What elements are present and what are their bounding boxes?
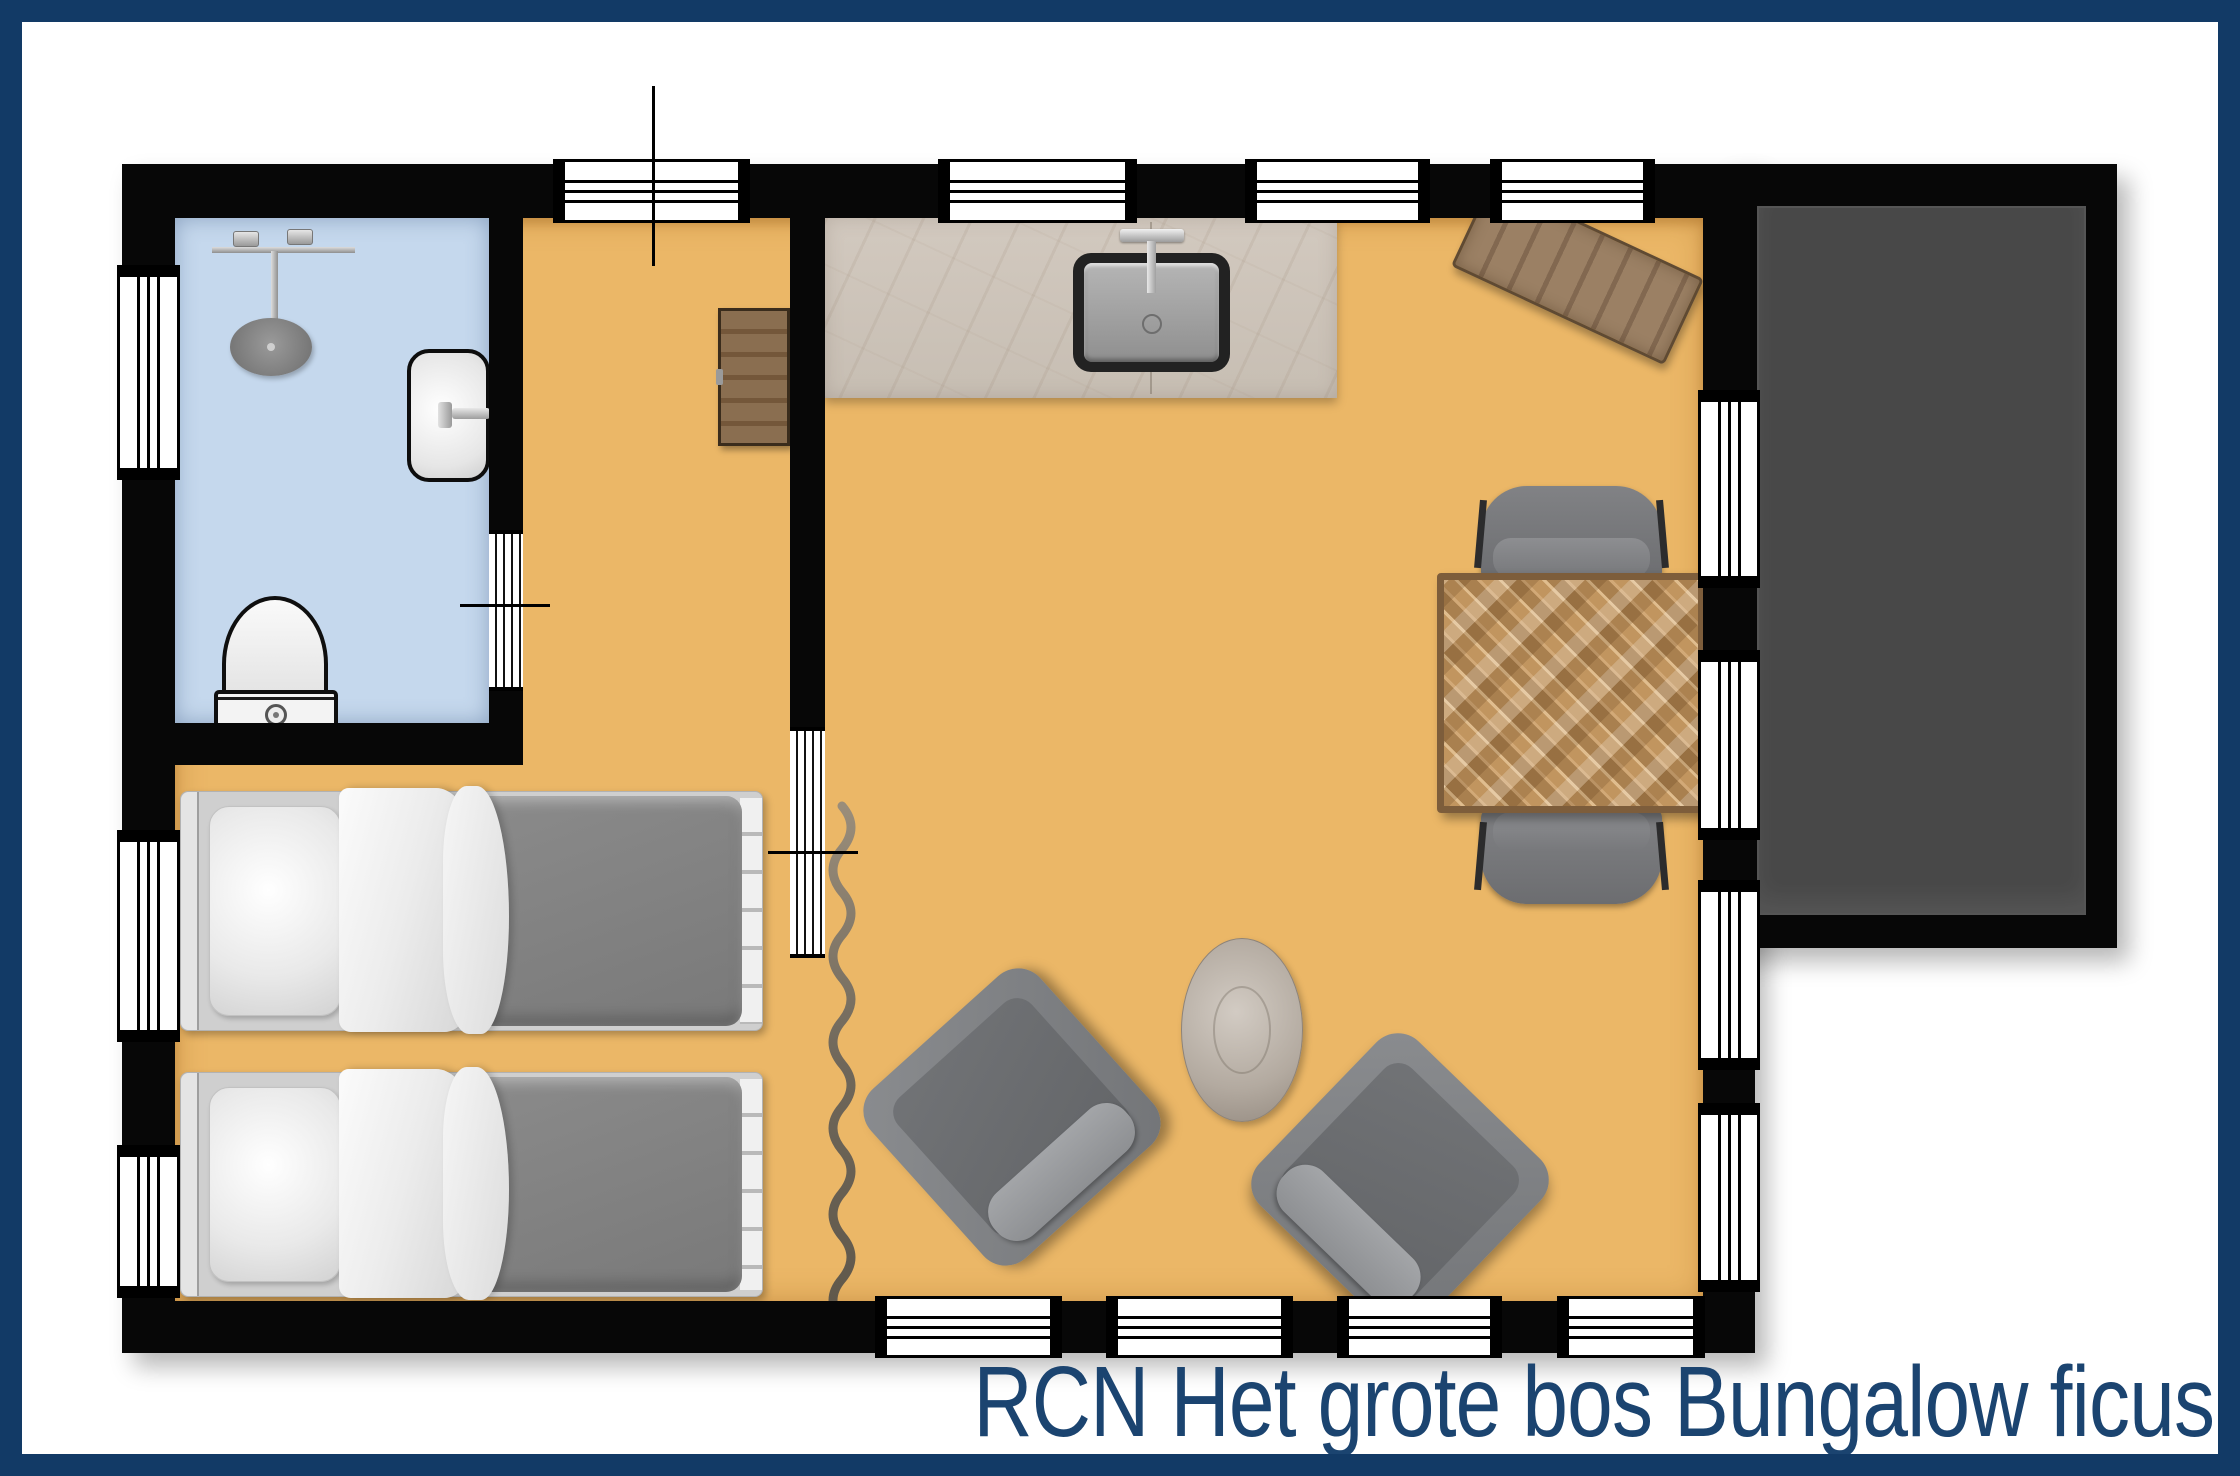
window-right-3	[1698, 880, 1760, 1070]
window-right-1	[1698, 390, 1760, 588]
kitchen-sink-drain	[1142, 314, 1162, 334]
kitchen-faucet-stem	[1147, 241, 1156, 293]
bathroom-door	[489, 530, 523, 691]
window-right-4	[1698, 1103, 1760, 1292]
dining-table	[1437, 573, 1705, 813]
side-table	[1181, 938, 1303, 1122]
bed-sheet-fold	[443, 1067, 509, 1300]
bed-footboard	[740, 798, 762, 1024]
plan-title: RCN Het grote bos Bungalow ficus	[973, 1350, 2214, 1460]
bathroom-door-mark	[460, 604, 550, 607]
cabinet-handle	[716, 369, 723, 385]
bathroom-sink-faucet	[452, 408, 490, 419]
window-left-bathroom	[117, 265, 180, 480]
dining-chair-south	[1481, 808, 1662, 904]
hallway-door-mark	[768, 851, 858, 854]
shower-valve-left	[233, 231, 259, 247]
bed-headboard	[181, 792, 199, 1030]
window-left-bed2	[117, 1145, 180, 1298]
shower-valve-right	[287, 229, 313, 245]
window-top-4	[1490, 159, 1655, 223]
window-left-bed1	[117, 830, 180, 1042]
shower-pipe	[212, 247, 355, 253]
bed-pillow	[209, 1087, 341, 1282]
window-right-2	[1698, 650, 1760, 840]
bed-headboard	[181, 1073, 199, 1296]
dining-chair-seat	[1493, 538, 1650, 578]
bed-sheet-fold	[443, 786, 509, 1034]
bed-footboard	[740, 1079, 762, 1290]
window-top-3	[1245, 159, 1430, 223]
wall-reference-mark	[652, 86, 655, 266]
window-top-2	[938, 159, 1137, 223]
wall-bathroom-bottom	[122, 723, 523, 765]
floor-plan-canvas: RCN Het grote bos Bungalow ficus	[0, 0, 2240, 1476]
bed-pillow	[209, 806, 341, 1016]
bed-1	[180, 791, 763, 1031]
wall-hallway-right	[790, 218, 825, 727]
shower-head	[230, 318, 312, 376]
dining-chair-seat	[1493, 812, 1650, 852]
curtain-squiggle	[833, 806, 851, 1320]
bed-2	[180, 1072, 763, 1297]
bathroom-sink-handle	[438, 402, 452, 428]
hallway-cabinet	[718, 308, 790, 446]
hallway-door	[790, 727, 825, 958]
dining-chair-north	[1481, 486, 1662, 582]
terrace-floor	[1757, 206, 2086, 915]
